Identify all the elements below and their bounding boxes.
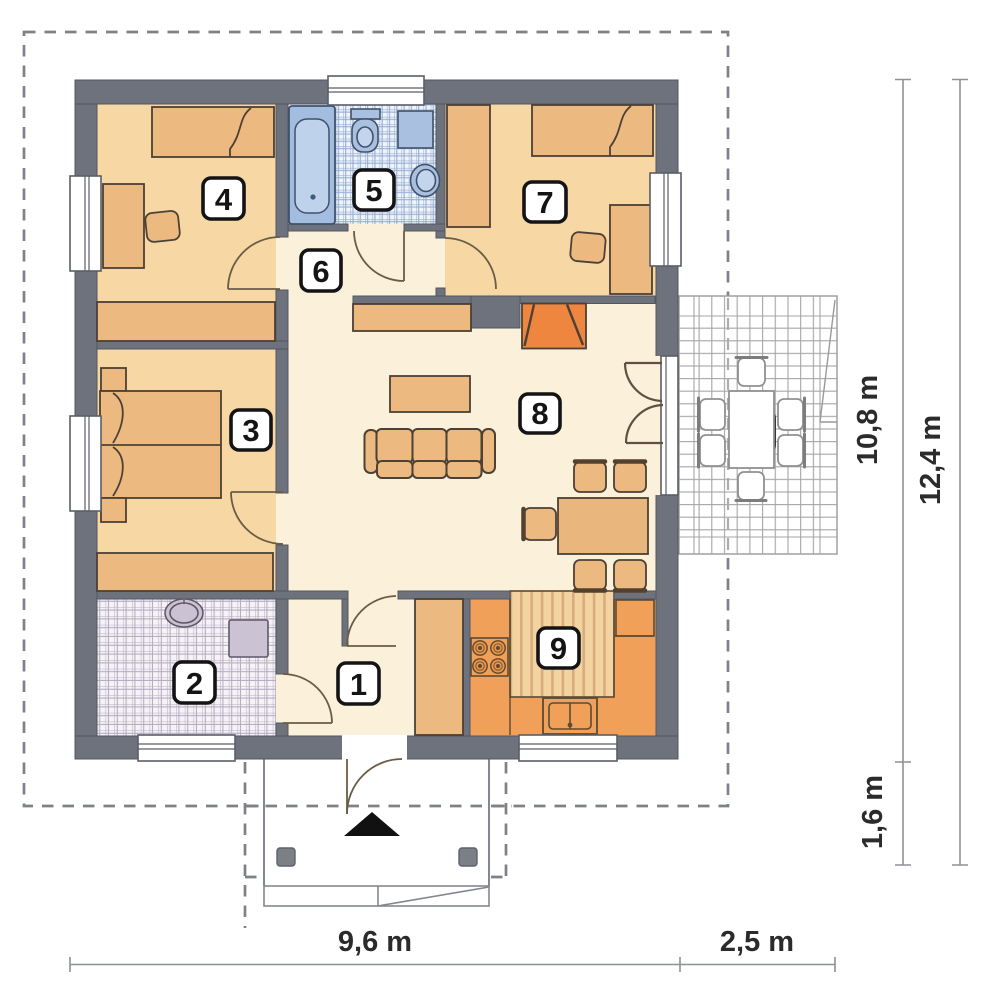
svg-text:12,4 m: 12,4 m <box>915 415 947 505</box>
svg-text:7: 7 <box>536 185 553 220</box>
svg-text:3: 3 <box>242 413 259 448</box>
svg-text:8: 8 <box>531 396 548 431</box>
svg-text:2: 2 <box>186 666 203 701</box>
svg-text:4: 4 <box>215 182 233 217</box>
svg-text:6: 6 <box>312 254 329 289</box>
svg-text:9: 9 <box>550 631 567 666</box>
svg-text:9,6 m: 9,6 m <box>338 926 412 958</box>
svg-text:2,5 m: 2,5 m <box>720 926 794 958</box>
svg-text:10,8 m: 10,8 m <box>852 375 884 465</box>
svg-text:1: 1 <box>350 667 367 702</box>
svg-text:5: 5 <box>365 173 382 208</box>
svg-text:1,6 m: 1,6 m <box>857 775 889 849</box>
